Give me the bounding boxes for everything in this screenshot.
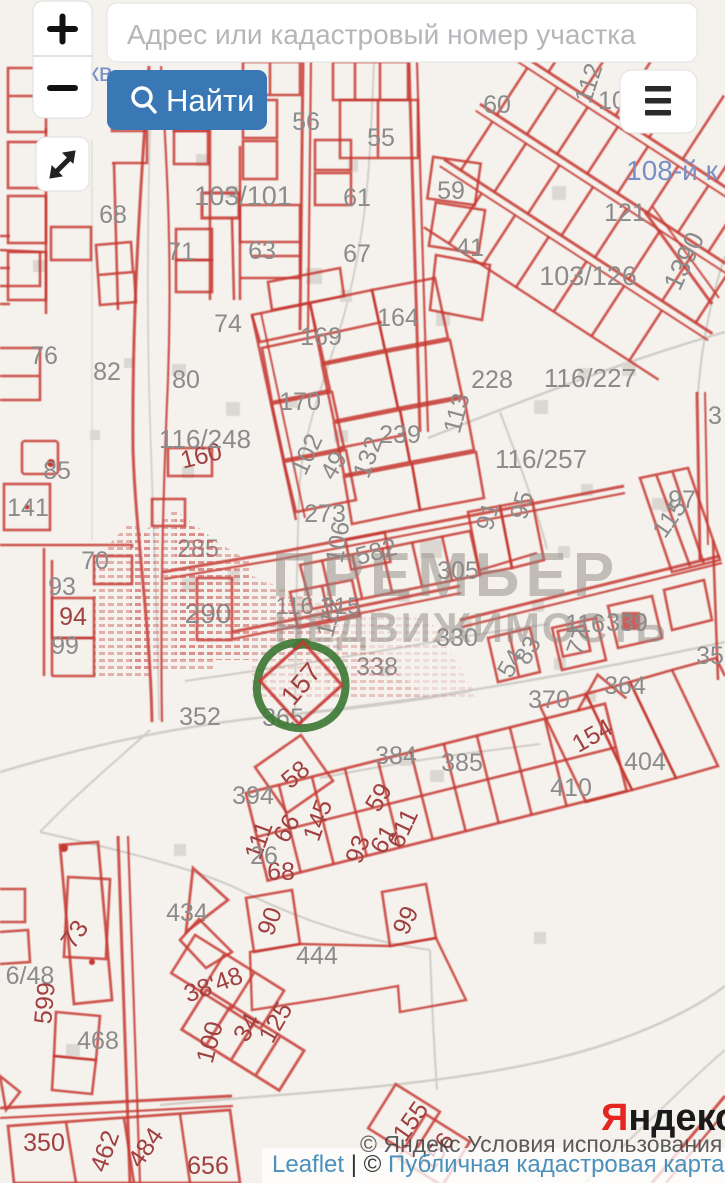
svg-text:Найти: Найти xyxy=(166,83,254,118)
svg-text:74: 74 xyxy=(214,310,242,338)
svg-text:61: 61 xyxy=(343,184,371,212)
svg-text:385: 385 xyxy=(441,749,483,777)
svg-text:121: 121 xyxy=(604,199,646,227)
svg-text:103/101: 103/101 xyxy=(194,181,292,211)
svg-text:103/126: 103/126 xyxy=(539,261,637,291)
svg-text:97: 97 xyxy=(668,486,696,514)
svg-text:108-й к: 108-й к xyxy=(626,155,718,186)
svg-text:228: 228 xyxy=(471,366,513,394)
svg-text:60: 60 xyxy=(483,91,511,119)
svg-text:94: 94 xyxy=(59,603,87,631)
svg-text:410: 410 xyxy=(550,774,592,802)
svg-text:82: 82 xyxy=(93,358,121,386)
svg-text:Яндекс: Яндекс xyxy=(601,1097,725,1139)
svg-text:370: 370 xyxy=(528,686,570,714)
svg-text:71: 71 xyxy=(167,238,195,266)
svg-text:656: 656 xyxy=(187,1152,229,1180)
svg-text:116/248: 116/248 xyxy=(159,424,251,454)
svg-text:76: 76 xyxy=(30,342,58,370)
svg-text:394: 394 xyxy=(232,782,274,810)
svg-text:63: 63 xyxy=(248,237,276,265)
svg-text:434: 434 xyxy=(166,899,208,927)
svg-text:170: 170 xyxy=(279,388,321,416)
svg-text:468: 468 xyxy=(77,1027,119,1055)
svg-text:93: 93 xyxy=(48,573,76,601)
svg-text:384: 384 xyxy=(375,742,417,770)
svg-text:364: 364 xyxy=(604,672,646,700)
svg-text:99: 99 xyxy=(51,632,79,660)
svg-text:404: 404 xyxy=(624,748,666,776)
svg-text:599: 599 xyxy=(29,981,61,1025)
svg-text:169: 169 xyxy=(300,323,342,351)
svg-text:80: 80 xyxy=(172,366,200,394)
svg-text:116/257: 116/257 xyxy=(495,444,587,474)
svg-text:352: 352 xyxy=(179,703,221,731)
svg-text:141: 141 xyxy=(7,494,49,522)
svg-text:85: 85 xyxy=(43,457,71,485)
svg-text:116/227: 116/227 xyxy=(544,363,636,393)
svg-text:444: 444 xyxy=(296,942,338,970)
svg-text:67: 67 xyxy=(343,240,371,268)
svg-text:164: 164 xyxy=(377,304,419,332)
svg-text:35: 35 xyxy=(696,642,724,670)
svg-text:НЕДВИЖИМОСТЬ: НЕДВИЖИМОСТЬ xyxy=(274,604,668,651)
svg-text:68: 68 xyxy=(99,201,127,229)
svg-text:350: 350 xyxy=(23,1129,65,1157)
svg-text:41: 41 xyxy=(456,234,484,262)
svg-text:Адрес или кадастровый номер уч: Адрес или кадастровый номер участка xyxy=(127,19,636,50)
svg-text:3: 3 xyxy=(708,402,722,430)
svg-text:26: 26 xyxy=(250,842,278,870)
svg-text:ПРЕМЬЕР: ПРЕМЬЕР xyxy=(272,541,620,610)
svg-text:Leaflet | © Публичная кадастро: Leaflet | © Публичная кадастровая карта,… xyxy=(272,1151,725,1178)
svg-text:56: 56 xyxy=(292,108,320,136)
svg-text:59: 59 xyxy=(437,177,465,205)
svg-text:55: 55 xyxy=(367,124,395,152)
